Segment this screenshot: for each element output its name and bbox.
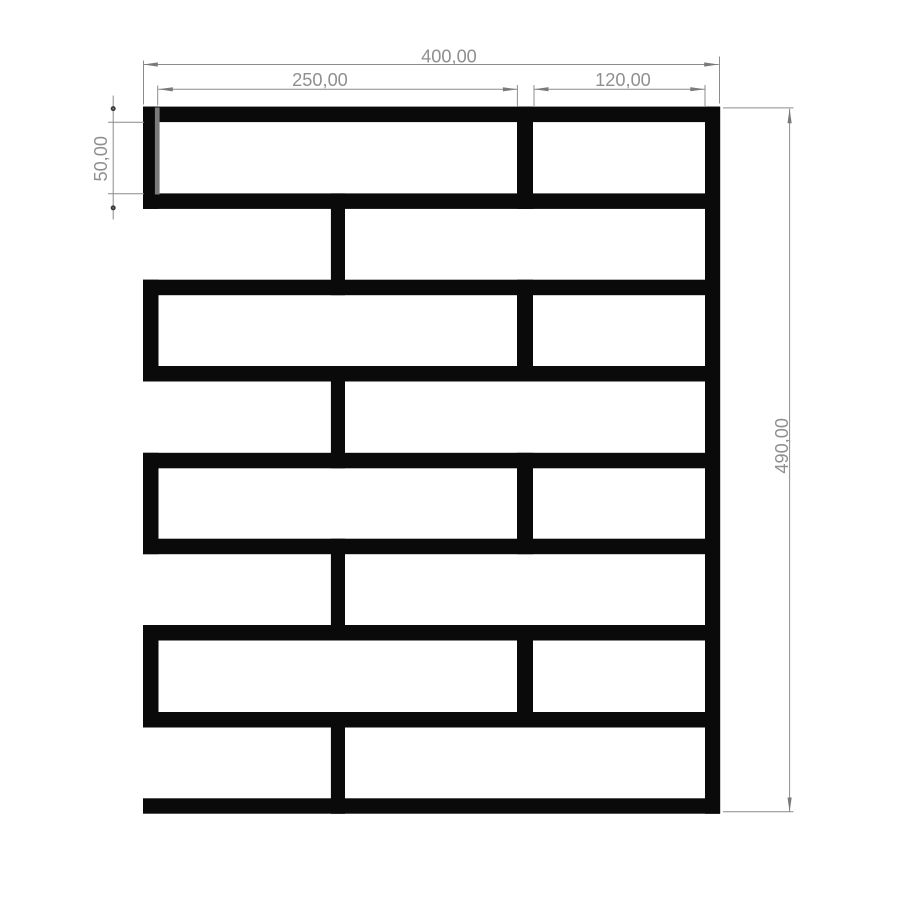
- svg-text:50,00: 50,00: [91, 136, 111, 182]
- svg-text:400,00: 400,00: [421, 46, 477, 66]
- svg-text:120,00: 120,00: [595, 70, 651, 90]
- svg-text:250,00: 250,00: [292, 70, 348, 90]
- svg-text:490,00: 490,00: [772, 418, 792, 474]
